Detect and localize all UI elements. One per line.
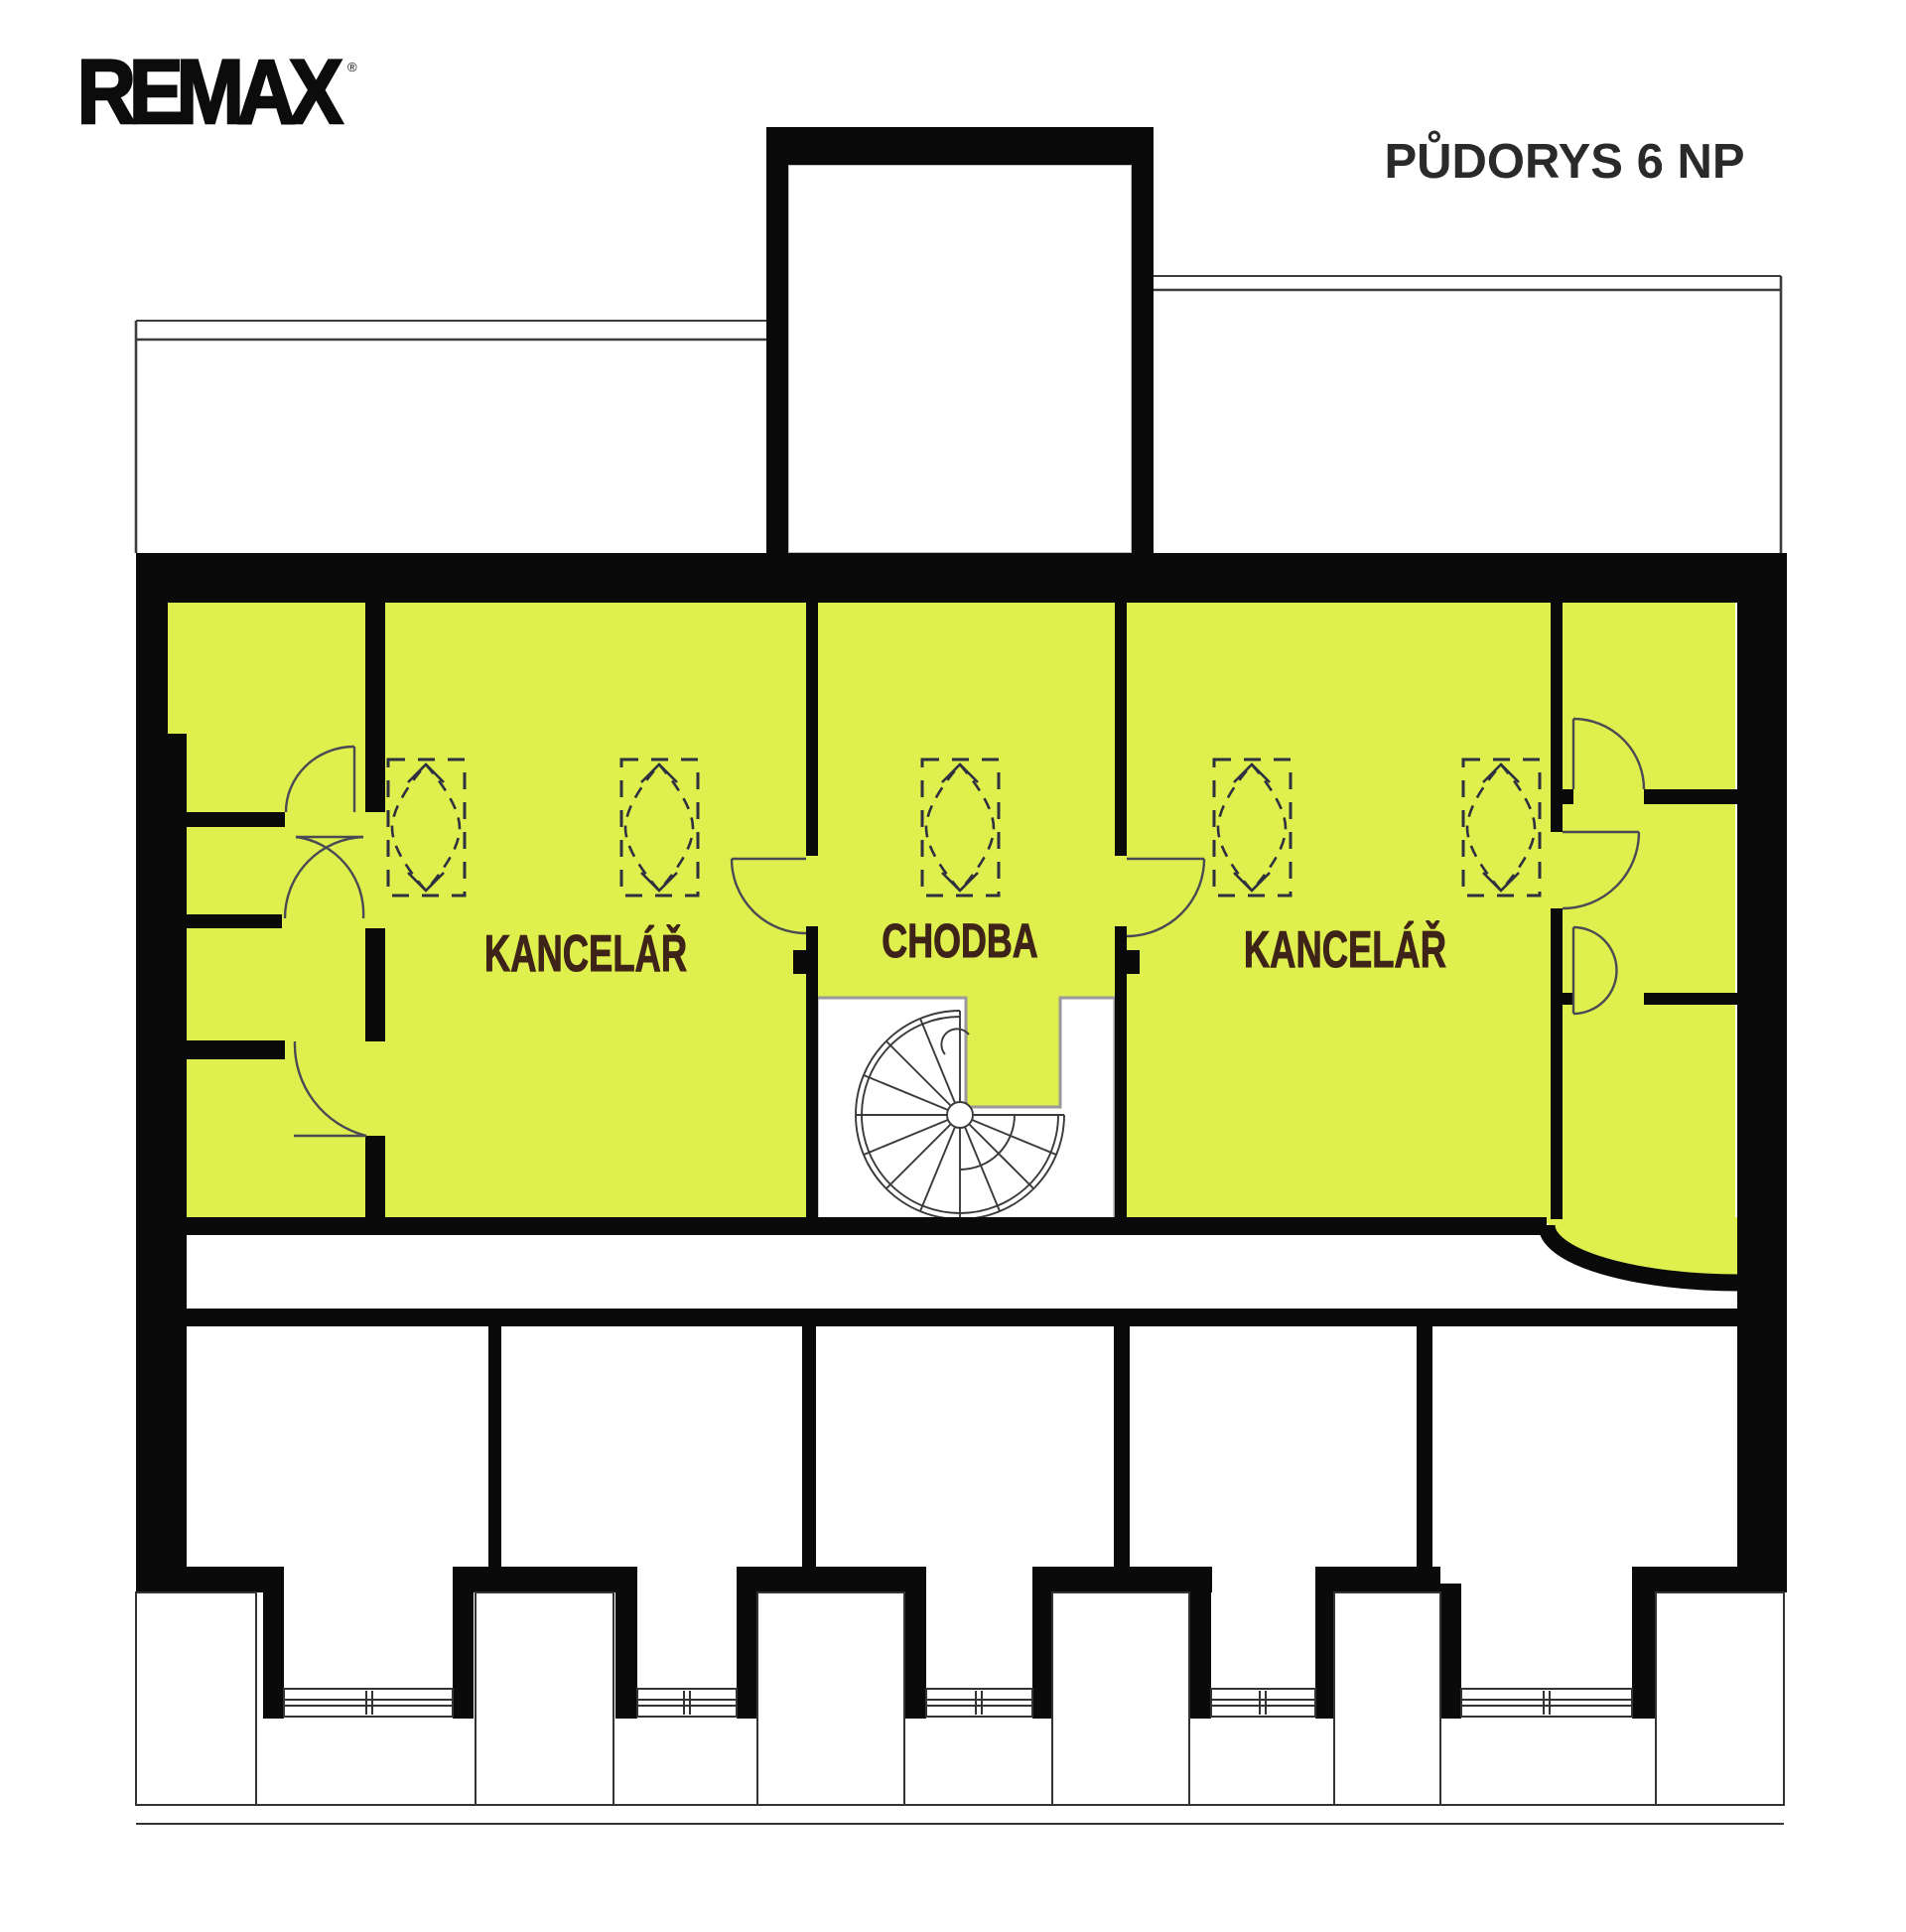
svg-text:REMAX: REMAX bbox=[77, 42, 343, 143]
svg-text:®: ® bbox=[347, 60, 357, 74]
svg-text:PŮDORYS 6 NP: PŮDORYS 6 NP bbox=[1384, 130, 1744, 189]
svg-text:CHODBA: CHODBA bbox=[882, 914, 1037, 967]
svg-text:KANCELÁŘ: KANCELÁŘ bbox=[1244, 919, 1446, 978]
svg-text:KANCELÁŘ: KANCELÁŘ bbox=[484, 923, 687, 982]
